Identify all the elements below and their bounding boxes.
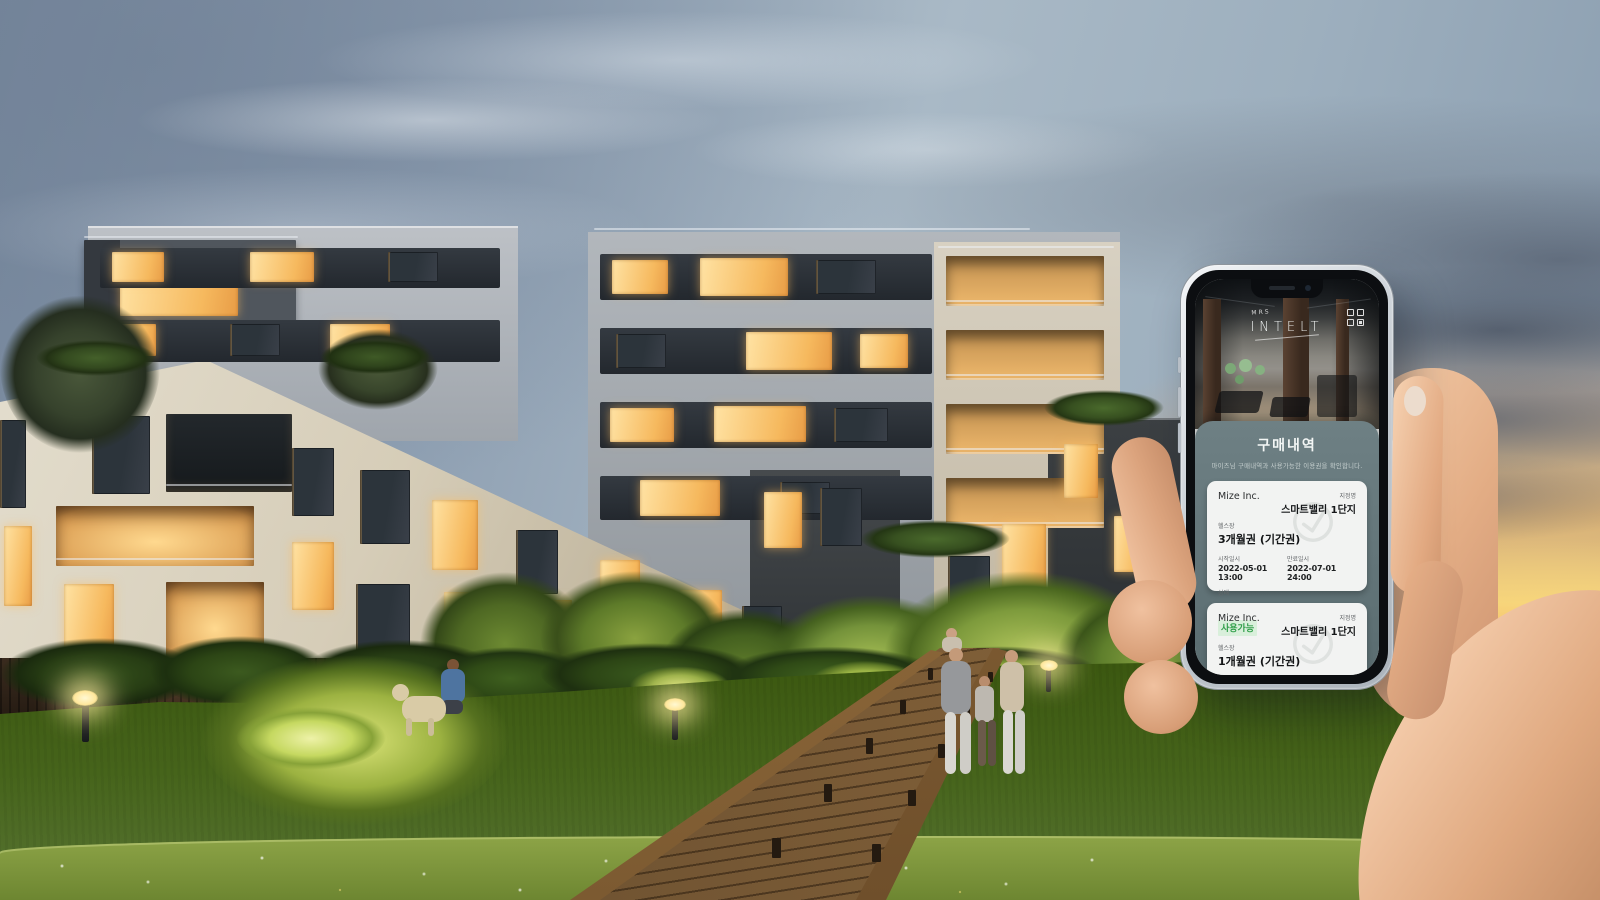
pass-card[interactable]: Mize Inc. 지정명 스마트밸리 1단지 헬스장 3개월권 (기간권) [1207,481,1367,591]
mother-leg [1003,710,1013,774]
bollard-light [672,706,678,740]
gym-rack [1317,375,1357,417]
status-label: 상태 [1218,588,1356,597]
father-body [941,661,971,714]
panel-subtitle: 마이즈님 구매내역과 사용가능한 이용권을 확인합니다. [1195,461,1379,470]
designation-label: 지정명 [1281,613,1356,622]
end-label: 만료일시 [1287,554,1356,563]
bollard-light [82,700,89,742]
mute-switch[interactable] [1178,357,1181,373]
pass-name: 3개월권 (기간권) [1218,531,1356,547]
gym-ball [1255,365,1265,375]
designation-label: 지정명 [1281,491,1356,500]
front-camera [1305,285,1311,291]
promo-scene: MRS INTELT 구매내역 마이즈님 구매내역과 사용가능한 이용권을 확인… [0,0,1600,900]
bollard-light-glow [1040,660,1058,671]
speaker-slit [1269,286,1295,290]
path-post [938,744,945,758]
father-leg [960,712,971,774]
pass-card-list: Mize Inc. 지정명 스마트밸리 1단지 헬스장 3개월권 (기간권) [1207,481,1367,675]
boy-body [975,686,994,722]
company-name: Mize Inc. [1218,491,1260,502]
father-head [949,648,963,662]
boy-leg [988,720,996,766]
phone-notch [1251,279,1323,298]
qr-grid-icon[interactable] [1347,309,1365,327]
phone-screen: MRS INTELT 구매내역 마이즈님 구매내역과 사용가능한 이용권을 확인… [1195,279,1379,675]
mother-body [1000,662,1024,712]
facility-label: 헬스장 [1218,643,1356,652]
pass-card[interactable]: Mize Inc. 지정명 스마트밸리 1단지 헬스장 1개월권 (기간권) [1207,603,1367,675]
gym-ball [1239,359,1252,372]
fingernail [1404,386,1426,416]
path-post [872,844,881,862]
purchase-history-panel: 구매내역 마이즈님 구매내역과 사용가능한 이용권을 확인합니다. Mize I… [1195,421,1379,675]
gym-ball [1235,375,1244,384]
end-datetime: 2022-07-01 24:00 [1287,564,1356,582]
boy-leg [978,720,986,766]
mother-leg [1015,710,1025,774]
start-label: 시작일시 [1218,554,1287,563]
path-post [928,668,933,680]
gym-equipment [1269,397,1311,417]
company-name: Mize Inc. [1218,613,1260,624]
path-post [824,784,832,802]
path-post [908,790,916,806]
curled-finger [1108,580,1192,664]
gym-equipment [1214,391,1263,413]
panel-title: 구매내역 [1195,435,1379,455]
smartphone: MRS INTELT 구매내역 마이즈님 구매내역과 사용가능한 이용권을 확인… [1180,264,1394,690]
bollard-light-glow [664,698,686,711]
facility-label: 헬스장 [1218,521,1356,530]
volume-down-button[interactable] [1178,423,1181,453]
volume-up-button[interactable] [1178,387,1181,417]
dog-leg [406,718,412,736]
designation-value: 스마트밸리 1단지 [1281,623,1356,638]
gym-ball [1225,363,1236,374]
pass-name: 1개월권 (기간권) [1218,653,1356,669]
bollard-light-glow [72,690,98,706]
father-leg [945,712,956,774]
curled-finger [1124,660,1198,734]
gym-logo-text: INTELT [1250,320,1323,335]
tree [236,700,386,770]
designation-value: 스마트밸리 1단지 [1281,501,1356,516]
dog-leg [428,718,434,736]
path-post [866,738,873,754]
gym-photo: MRS INTELT [1195,279,1379,429]
start-datetime: 2022-05-01 13:00 [1218,564,1287,582]
path-post [772,838,781,858]
crouching-boy-body [441,669,465,703]
path-post [900,700,906,714]
dog-head [392,684,409,701]
phone-bezel: MRS INTELT 구매내역 마이즈님 구매내역과 사용가능한 이용권을 확인… [1186,270,1388,684]
